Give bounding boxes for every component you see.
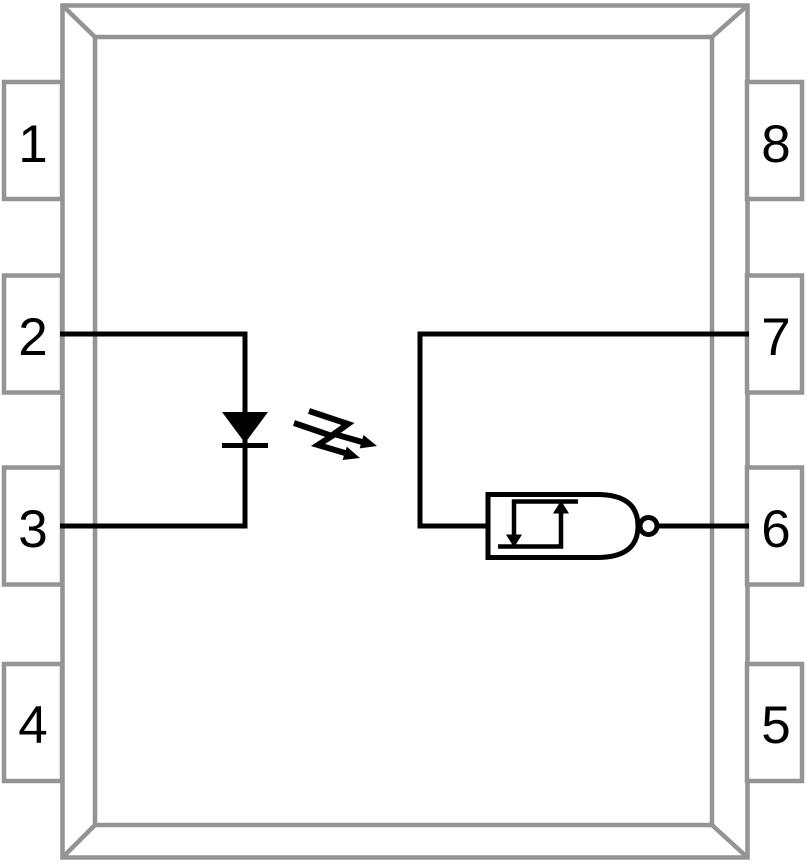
- pin-8-label: 8: [761, 115, 790, 174]
- wires: [60, 334, 749, 526]
- bevel-bottom-left: [63, 825, 96, 858]
- led-triangle: [222, 412, 268, 443]
- pin-1-label: 1: [18, 115, 47, 174]
- pin-7-label: 7: [761, 308, 790, 367]
- pin-6-label: 6: [761, 500, 790, 559]
- package-outer-edge: [63, 6, 748, 858]
- optocoupler-pinout-diagram: 1 2 3 4 8 7 6 5: [0, 0, 807, 863]
- package-inner-edge: [95, 37, 712, 825]
- bevel-top-left: [63, 6, 96, 38]
- pin-boxes: [4, 82, 802, 781]
- schmitt-trigger-inverter-gate-icon: [488, 495, 657, 558]
- dip-package-outline: [63, 6, 748, 858]
- pin-4-label: 4: [18, 696, 47, 755]
- pin-2-label: 2: [18, 308, 47, 367]
- bevel-top-right: [712, 6, 748, 38]
- light-emission-arrows-icon: [294, 411, 362, 453]
- light-arrow-shaft-top: [309, 411, 362, 442]
- light-arrowhead-top: [360, 435, 377, 448]
- light-arrowhead-bottom: [343, 447, 360, 460]
- schematic-canvas: 1 2 3 4 8 7 6 5: [0, 0, 807, 863]
- led-diode-icon: [222, 412, 268, 446]
- pin-labels: 1 2 3 4 8 7 6 5: [18, 115, 790, 755]
- bevel-bottom-right: [712, 825, 748, 858]
- pin-5-label: 5: [761, 696, 790, 755]
- pin-3-label: 3: [18, 500, 47, 559]
- inverter-bubble-icon: [640, 518, 657, 535]
- led-anode-cathode-wire: [60, 334, 245, 526]
